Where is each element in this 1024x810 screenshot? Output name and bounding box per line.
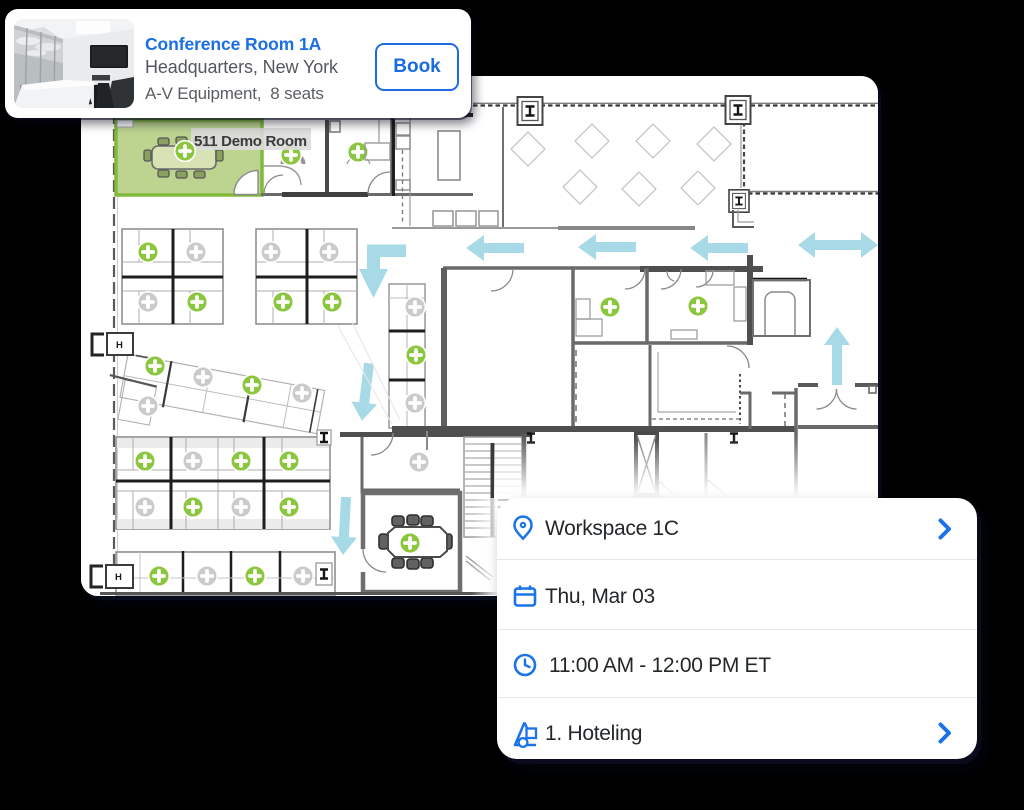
svg-text:511 Demo Room: 511 Demo Room [194, 133, 307, 150]
svg-text:H: H [116, 340, 123, 351]
svg-text:H: H [115, 572, 122, 583]
